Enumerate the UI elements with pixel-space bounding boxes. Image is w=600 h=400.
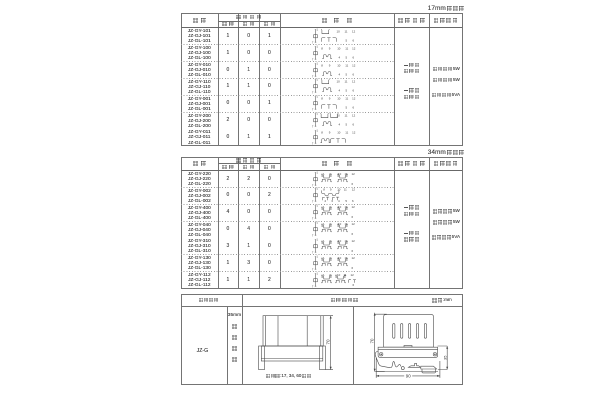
svg-text:11: 11 — [345, 46, 348, 50]
svg-text:6: 6 — [351, 215, 353, 219]
svg-text:8: 8 — [321, 63, 323, 67]
svg-text:11: 11 — [344, 188, 347, 192]
svg-text:11: 11 — [344, 205, 347, 209]
svg-text:12: 12 — [351, 256, 355, 260]
svg-text:11: 11 — [345, 130, 348, 134]
svg-text:4: 4 — [339, 123, 341, 127]
svg-text:1: 1 — [317, 205, 319, 208]
svg-text:6: 6 — [352, 199, 354, 203]
svg-text:1: 1 — [323, 222, 325, 226]
svg-text:6: 6 — [352, 72, 354, 76]
svg-text:10: 10 — [338, 172, 342, 176]
svg-text:1: 1 — [317, 188, 319, 191]
svg-text:5: 5 — [345, 123, 347, 127]
svg-text:4: 4 — [339, 89, 341, 93]
svg-text:10: 10 — [337, 188, 341, 192]
svg-text:6: 6 — [352, 89, 354, 93]
svg-text:5: 5 — [345, 199, 347, 203]
svg-text:8: 8 — [321, 97, 323, 101]
svg-text:12: 12 — [350, 273, 354, 277]
svg-text:12: 12 — [352, 46, 356, 50]
svg-text:90: 90 — [406, 374, 411, 379]
svg-text:12: 12 — [351, 239, 355, 243]
svg-text:10: 10 — [337, 29, 341, 33]
svg-text:1: 1 — [317, 62, 319, 65]
svg-text:11: 11 — [344, 80, 347, 84]
svg-text:12: 12 — [352, 63, 356, 67]
svg-text:11: 11 — [344, 222, 347, 226]
svg-text:1: 1 — [317, 171, 319, 174]
svg-text:11: 11 — [344, 256, 347, 260]
svg-text:11: 11 — [344, 114, 347, 118]
svg-text:12: 12 — [352, 188, 356, 192]
svg-text:70: 70 — [326, 339, 331, 345]
svg-text:70: 70 — [370, 338, 375, 343]
svg-text:1: 1 — [317, 272, 319, 275]
svg-text:6: 6 — [351, 232, 353, 236]
svg-text:10: 10 — [338, 222, 342, 226]
svg-text:5: 5 — [345, 38, 347, 42]
svg-text:6: 6 — [351, 249, 353, 253]
svg-text:12: 12 — [352, 130, 356, 134]
svg-text:5: 5 — [345, 89, 347, 93]
svg-text:1: 1 — [317, 45, 319, 48]
svg-text:7: 7 — [312, 284, 314, 288]
svg-text:4: 4 — [339, 72, 341, 76]
svg-text:10: 10 — [337, 97, 341, 101]
svg-text:1: 1 — [317, 239, 319, 242]
svg-text:6: 6 — [352, 55, 354, 59]
svg-text:3: 3 — [331, 199, 333, 203]
svg-text:11: 11 — [344, 29, 347, 33]
svg-text:5: 5 — [345, 72, 347, 76]
svg-text:10: 10 — [337, 80, 341, 84]
svg-text:12: 12 — [352, 97, 356, 101]
svg-text:6: 6 — [351, 266, 353, 270]
svg-text:2: 2 — [325, 199, 327, 203]
svg-text:8: 8 — [321, 130, 323, 134]
svg-text:9: 9 — [329, 97, 331, 101]
svg-text:35: 35 — [442, 355, 447, 360]
svg-text:1: 1 — [317, 96, 319, 99]
svg-text:5: 5 — [345, 106, 347, 110]
svg-text:10: 10 — [337, 273, 341, 277]
svg-text:1: 1 — [323, 205, 325, 209]
svg-text:1: 1 — [317, 79, 319, 82]
svg-text:12: 12 — [352, 29, 356, 33]
svg-text:10: 10 — [337, 63, 341, 67]
svg-text:1: 1 — [323, 256, 325, 260]
svg-text:1: 1 — [323, 239, 325, 243]
svg-text:10: 10 — [337, 46, 341, 50]
svg-text:10: 10 — [338, 239, 342, 243]
svg-text:10: 10 — [338, 205, 342, 209]
svg-text:9: 9 — [330, 188, 332, 192]
svg-text:10: 10 — [338, 256, 342, 260]
svg-text:6: 6 — [352, 106, 354, 110]
svg-text:4: 4 — [338, 199, 340, 203]
svg-text:12: 12 — [352, 114, 356, 118]
svg-text:12: 12 — [351, 205, 355, 209]
svg-text:1: 1 — [317, 29, 319, 32]
svg-text:9: 9 — [329, 130, 331, 134]
svg-text:12: 12 — [351, 222, 355, 226]
svg-text:7: 7 — [312, 141, 314, 145]
svg-text:8: 8 — [323, 188, 325, 192]
svg-text:6: 6 — [351, 181, 353, 185]
svg-text:1: 1 — [317, 255, 319, 258]
svg-text:6: 6 — [352, 283, 354, 287]
svg-text:1: 1 — [317, 113, 319, 116]
svg-text:1: 1 — [317, 222, 319, 225]
svg-text:12: 12 — [352, 80, 356, 84]
svg-text:11: 11 — [345, 63, 348, 67]
svg-text:6: 6 — [352, 123, 354, 127]
svg-text:10: 10 — [337, 130, 341, 134]
svg-text:1: 1 — [323, 273, 325, 277]
svg-text:8: 8 — [321, 46, 323, 50]
svg-text:11: 11 — [344, 273, 347, 277]
svg-text:11: 11 — [345, 97, 348, 101]
svg-text:11: 11 — [344, 239, 347, 243]
svg-text:6: 6 — [352, 38, 354, 42]
svg-text:4: 4 — [339, 55, 341, 59]
svg-text:12: 12 — [351, 172, 355, 176]
svg-text:9: 9 — [329, 63, 331, 67]
svg-text:9: 9 — [329, 46, 331, 50]
svg-text:11: 11 — [344, 172, 347, 176]
svg-text:10: 10 — [337, 114, 341, 118]
svg-text:1: 1 — [317, 130, 319, 133]
svg-text:1: 1 — [323, 172, 325, 176]
svg-text:5: 5 — [345, 55, 347, 59]
